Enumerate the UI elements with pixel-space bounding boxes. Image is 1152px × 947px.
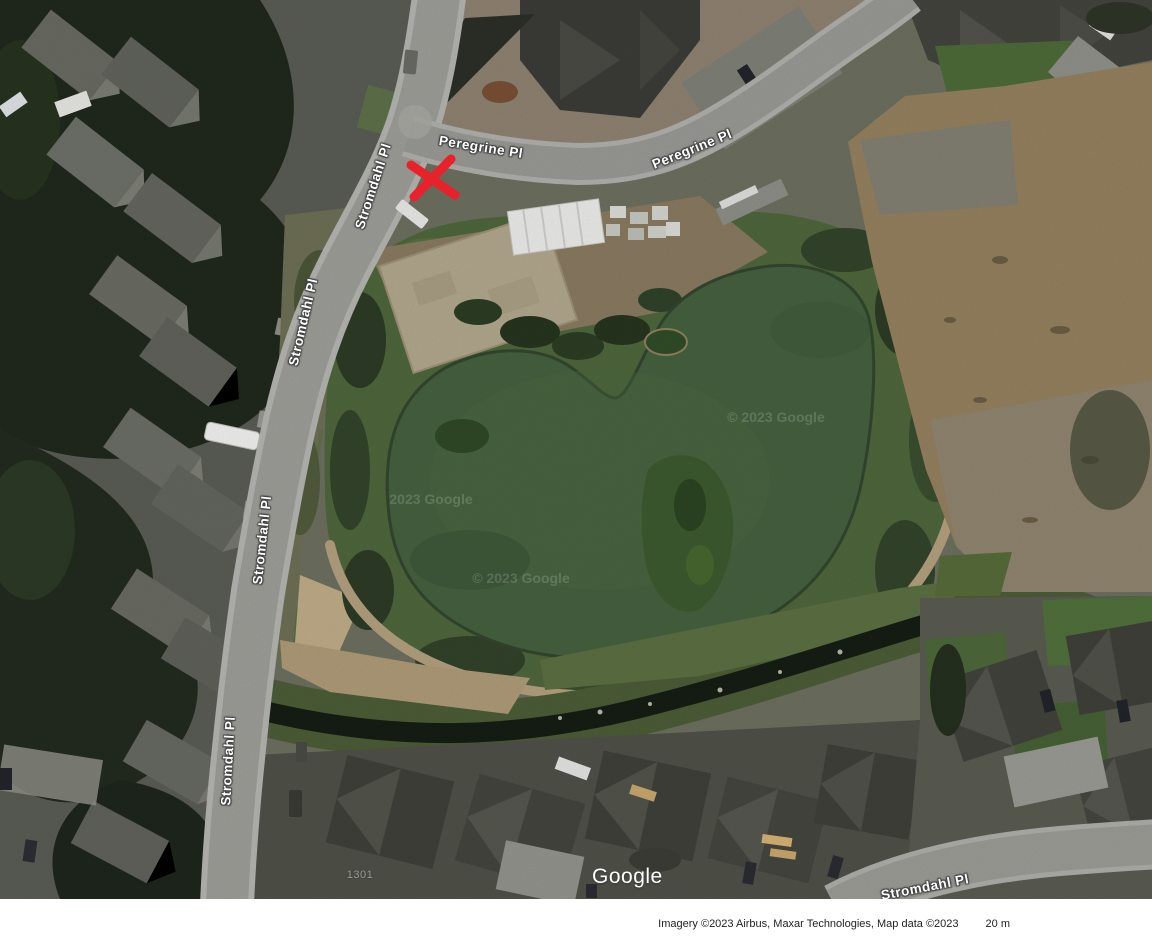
pond-water-shadow	[770, 302, 870, 358]
weed-patch	[935, 552, 1012, 596]
google-logo[interactable]: Google	[592, 865, 663, 889]
small-island	[645, 329, 687, 355]
island-trees	[674, 479, 706, 531]
water-bush	[435, 419, 489, 453]
map-attribution-bar: Imagery ©2023 Airbus, Maxar Technologies…	[0, 916, 1010, 932]
satellite-imagery	[0, 0, 1152, 899]
tree-canopy	[1086, 2, 1152, 34]
island-trees	[686, 545, 714, 585]
satellite-map-canvas[interactable]: Peregrine Pl Peregrine Pl Stromdahl Pl S…	[0, 0, 1152, 899]
tree-shadow	[1070, 390, 1150, 510]
tree-canopy	[930, 644, 966, 736]
excavation-dirt	[482, 81, 518, 103]
pond-water-shadow	[410, 530, 530, 590]
screenshot-root: Peregrine Pl Peregrine Pl Stromdahl Pl S…	[0, 0, 1152, 947]
attribution-text: Imagery ©2023 Airbus, Maxar Technologies…	[658, 918, 958, 930]
intersection	[398, 105, 432, 139]
scale-text: 20 m	[986, 918, 1010, 930]
